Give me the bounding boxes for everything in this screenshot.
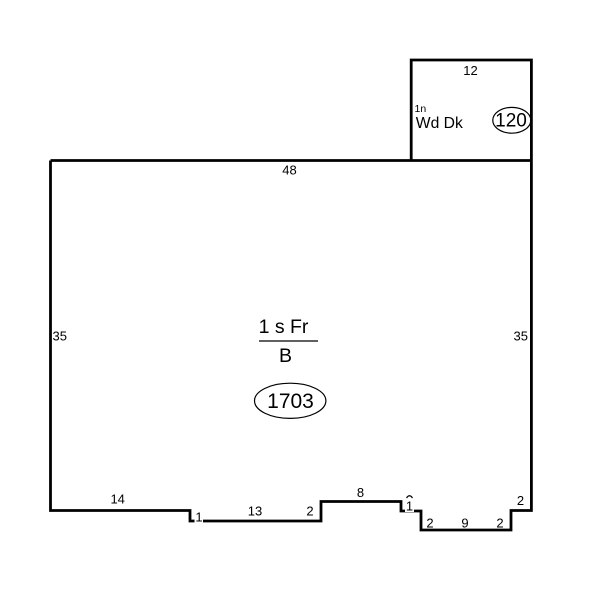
svg-text:2: 2 <box>306 504 313 519</box>
svg-text:9: 9 <box>461 516 468 531</box>
svg-text:48: 48 <box>282 163 296 178</box>
svg-text:13: 13 <box>248 504 262 519</box>
svg-text:8: 8 <box>357 485 364 500</box>
svg-text:1703: 1703 <box>267 390 314 413</box>
svg-text:1n: 1n <box>415 103 427 115</box>
svg-text:B: B <box>279 345 292 367</box>
svg-text:1: 1 <box>406 499 413 514</box>
svg-text:1 s Fr: 1 s Fr <box>259 316 309 338</box>
svg-text:2: 2 <box>426 516 433 531</box>
svg-text:2: 2 <box>496 516 503 531</box>
svg-text:1: 1 <box>195 510 202 525</box>
svg-text:12: 12 <box>463 63 477 78</box>
svg-text:Wd Dk: Wd Dk <box>416 115 463 132</box>
svg-text:35: 35 <box>514 329 528 344</box>
svg-text:14: 14 <box>110 492 124 507</box>
svg-text:2: 2 <box>517 493 524 508</box>
svg-text:120: 120 <box>495 111 527 132</box>
svg-text:35: 35 <box>53 329 67 344</box>
